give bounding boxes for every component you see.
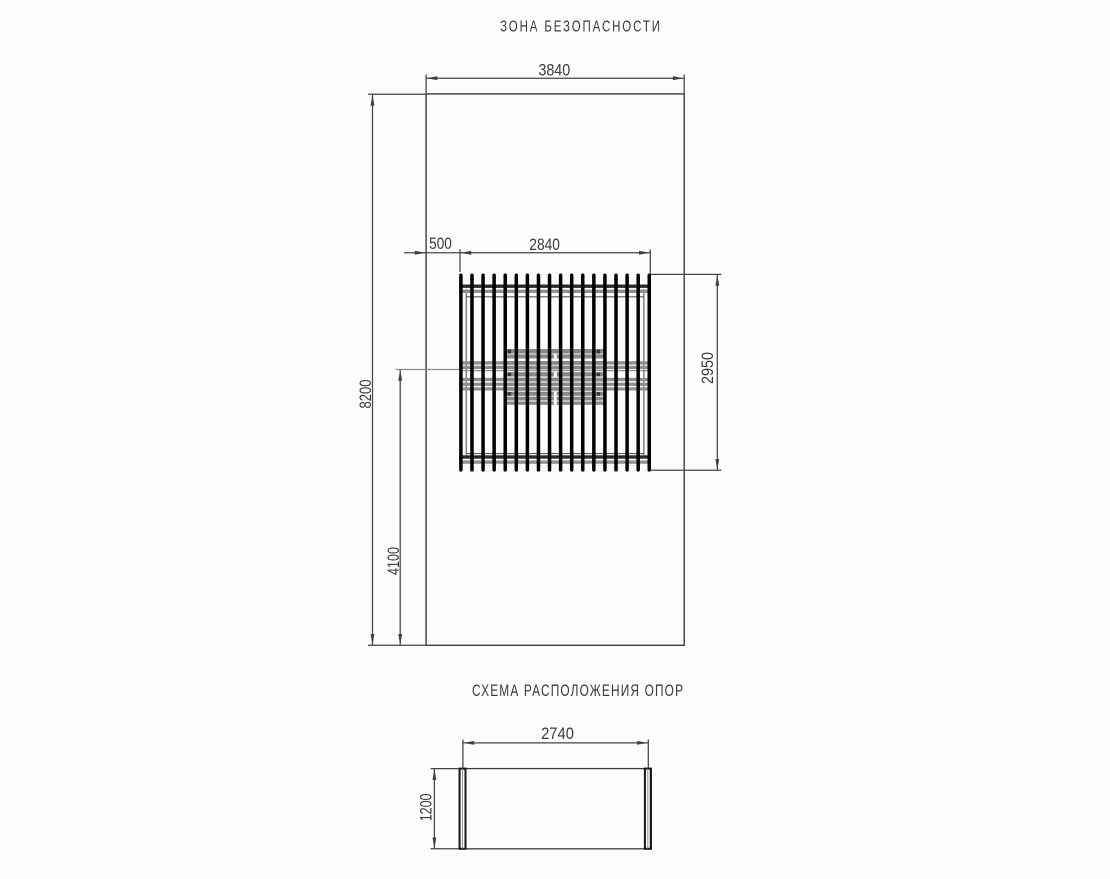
svg-text:ЗОНА БЕЗОПАСНОСТИ: ЗОНА БЕЗОПАСНОСТИ: [500, 16, 662, 34]
svg-text:8200: 8200: [356, 380, 375, 409]
svg-text:СХЕМА РАСПОЛОЖЕНИЯ ОПОР: СХЕМА РАСПОЛОЖЕНИЯ ОПОР: [472, 682, 684, 700]
svg-text:2950: 2950: [698, 352, 717, 384]
svg-text:1200: 1200: [416, 794, 435, 822]
svg-text:2840: 2840: [529, 235, 560, 254]
svg-text:3840: 3840: [538, 60, 570, 79]
svg-text:2740: 2740: [541, 724, 574, 743]
svg-text:4100: 4100: [384, 547, 403, 575]
svg-text:500: 500: [429, 234, 452, 253]
